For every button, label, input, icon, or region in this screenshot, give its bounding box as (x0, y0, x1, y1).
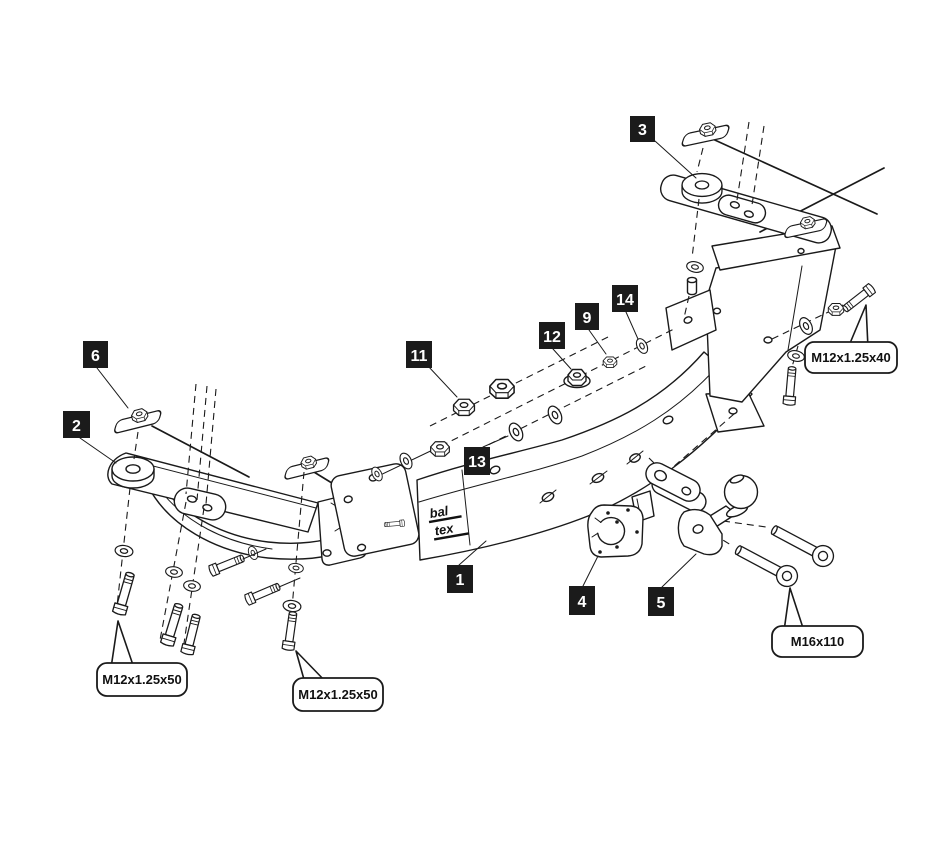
callout-m16x110-text: M16x110 (791, 634, 845, 649)
bolt-angled (244, 581, 282, 605)
bolt-vertical (783, 366, 798, 405)
rubber-bushing-top (682, 174, 722, 203)
left-hanging-bolts (112, 544, 304, 655)
top-column-fasteners (686, 260, 705, 294)
part-label-14-text: 14 (616, 292, 634, 309)
part-label-11: 11 (406, 341, 432, 368)
washer (114, 544, 133, 557)
rubber-bushing-left (112, 457, 154, 488)
callout-m16x110: M16x110 (772, 588, 863, 657)
callout-m12x1-25x40-text: M12x1.25x40 (811, 350, 891, 365)
bolt-m12x50 (282, 611, 299, 651)
part-label-14: 14 (612, 285, 638, 312)
part-label-2-text: 2 (72, 418, 81, 435)
callout-m12x1-25x50-right: M12x1.25x50 (293, 651, 383, 711)
washer-14 (634, 337, 650, 355)
washer-13 (506, 421, 525, 443)
callout-m12x1-25x50-left-text: M12x1.25x50 (102, 672, 182, 687)
hex-nut (431, 442, 450, 456)
clamp-plate-left-rear (280, 452, 333, 480)
part-label-6-text: 6 (91, 348, 100, 365)
hex-nut (490, 380, 514, 399)
callout-m12x1-25x50-right-text: M12x1.25x50 (298, 687, 378, 702)
part-label-1: 1 (447, 565, 473, 593)
hex-nut-11 (454, 399, 475, 415)
clamp-plate-top (677, 119, 732, 147)
spacer-sleeve (688, 277, 697, 294)
ball-mount-assembly (642, 459, 837, 590)
towbar-exploded-diagram: bal tex (0, 0, 951, 844)
bolt-m12x50 (181, 613, 203, 656)
part-label-9: 9 (575, 303, 599, 330)
washer (282, 599, 301, 612)
washer (545, 404, 564, 426)
part-label-11-text: 11 (411, 348, 428, 365)
washer (288, 562, 304, 573)
part-label-4-text: 4 (578, 594, 587, 611)
part-label-9-text: 9 (583, 310, 592, 327)
part-label-2: 2 (63, 411, 90, 438)
bolt-m12x50 (160, 602, 185, 647)
part-label-6: 6 (83, 341, 108, 368)
small-nut-9 (603, 357, 617, 368)
bolt-m12x40 (841, 283, 876, 314)
washer (183, 580, 201, 593)
bolt-m16x110 (768, 520, 838, 570)
part-label-5-text: 5 (657, 595, 666, 612)
clamp-plate-6 (109, 404, 164, 434)
washer (165, 566, 183, 579)
part-label-12: 12 (539, 322, 565, 349)
part-label-1-text: 1 (456, 572, 465, 589)
part-label-5: 5 (648, 587, 674, 616)
part-label-3: 3 (630, 116, 655, 142)
diagram-svg: bal tex (0, 0, 951, 844)
washer (686, 260, 705, 274)
bolt-m12x50 (112, 571, 137, 616)
flange-nut-12 (564, 370, 590, 388)
part-label-13: 13 (464, 447, 490, 475)
part-label-12-text: 12 (543, 329, 561, 346)
part-label-3-text: 3 (638, 122, 647, 139)
hex-nut (828, 304, 843, 316)
part-label-13-text: 13 (468, 454, 486, 471)
part-label-4: 4 (569, 586, 595, 615)
washer (787, 349, 806, 363)
bolt-m16x110 (732, 540, 802, 590)
bolt-angled (208, 553, 246, 577)
